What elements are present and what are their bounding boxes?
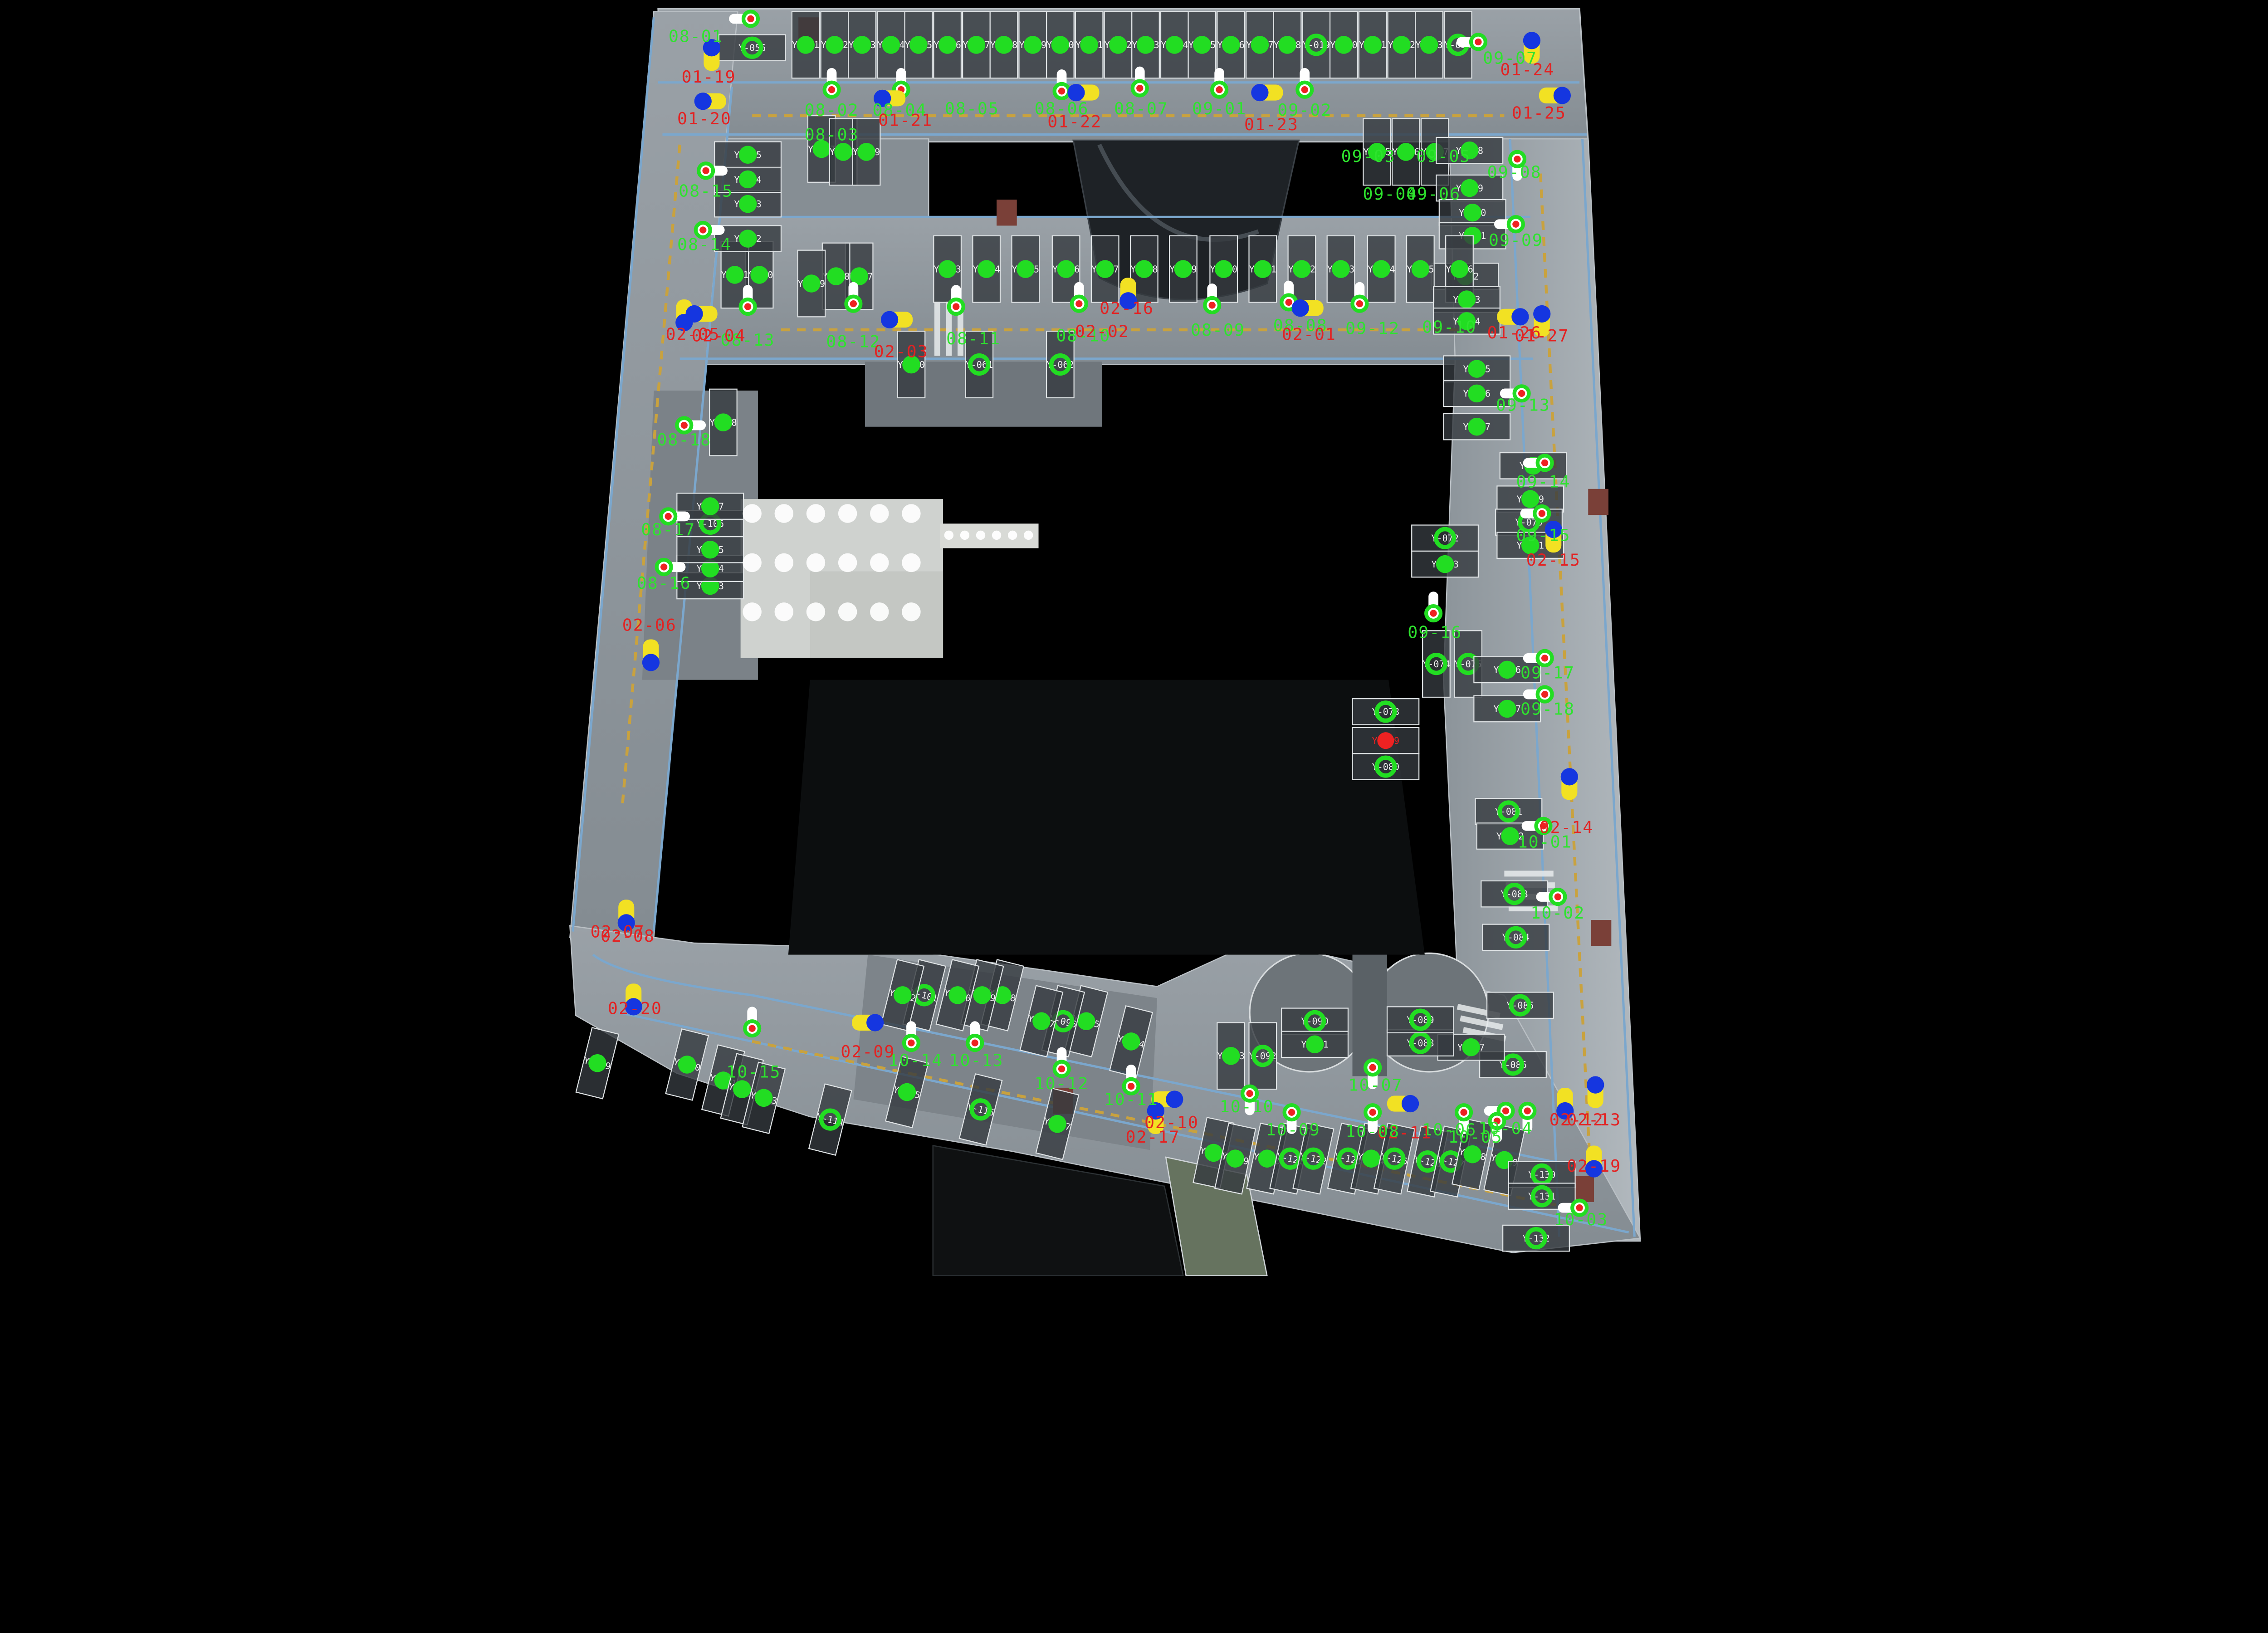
parking-stall[interactable]: Y-021	[1359, 12, 1387, 78]
stall-vacant-dot	[1051, 36, 1070, 54]
stall-vacant-dot	[1222, 36, 1240, 54]
camera-center-dot	[749, 1025, 756, 1032]
ceiling-light	[838, 602, 857, 621]
zone-label[interactable]: 09-15	[1516, 526, 1570, 545]
lit-lobby	[741, 499, 1039, 658]
zone-label[interactable]: 02-01	[1282, 324, 1336, 344]
ceiling-light	[807, 553, 825, 572]
parking-stall[interactable]: Y-105	[677, 537, 743, 562]
stall-vacant-dot	[1373, 260, 1391, 278]
parking-stall[interactable]: Y-091	[1281, 1032, 1348, 1057]
stall-vacant-dot	[1412, 260, 1430, 278]
vehicle-cap	[881, 311, 898, 328]
zone-label[interactable]: 08-07	[1114, 99, 1168, 118]
parking-stall[interactable]: Y-037	[1091, 236, 1119, 303]
vehicle-marker[interactable]	[1539, 87, 1571, 104]
maintenance-patch	[1588, 489, 1608, 515]
stall-vacant-dot	[1458, 290, 1476, 308]
parking-stall[interactable]: Y-044	[1368, 236, 1395, 303]
parking-stall[interactable]: Y-072	[1412, 525, 1478, 551]
parking-stall[interactable]: Y-080	[1353, 753, 1419, 779]
stall-vacant-dot	[726, 266, 744, 284]
garage-map-stage: Y-001Y-002Y-003Y-004Y-005Y-006Y-007Y-008…	[0, 0, 2268, 1276]
vehicle-cap	[1554, 87, 1571, 104]
camera-center-dot	[1512, 221, 1519, 228]
zone-label[interactable]: 02-06	[622, 615, 677, 635]
stall-vacant-dot	[1293, 260, 1311, 278]
camera-center-dot	[1541, 691, 1548, 698]
parking-stall[interactable]: Y-060	[898, 331, 925, 398]
maintenance-patch	[1574, 1176, 1594, 1202]
zone-label[interactable]: 01-20	[677, 109, 732, 128]
vehicle-cap	[1292, 299, 1309, 317]
zone-label[interactable]: 01-24	[1500, 60, 1554, 79]
camera-center-dot	[1369, 1064, 1376, 1071]
camera-marker[interactable]	[1426, 592, 1441, 621]
vehicle-marker[interactable]	[1587, 1076, 1604, 1108]
stall-occupied-dot	[1377, 732, 1394, 749]
parking-stall[interactable]: Y-008	[990, 12, 1018, 78]
camera-center-dot	[908, 1039, 914, 1046]
camera-center-dot	[850, 300, 857, 307]
vehicle-cap	[866, 1014, 884, 1031]
stall-vacant-dot	[1080, 36, 1098, 54]
stall-vacant-dot	[1462, 1038, 1480, 1056]
zone-label[interactable]: 08-17	[641, 520, 695, 539]
camera-center-dot	[1209, 302, 1216, 308]
parking-stall[interactable]: Y-019	[1302, 12, 1330, 78]
vehicle-marker[interactable]	[1292, 299, 1324, 317]
parking-stall[interactable]: Y-088	[1387, 1030, 1454, 1056]
zone-label[interactable]: 02-02	[1075, 322, 1129, 341]
stall-vacant-dot	[1468, 360, 1486, 378]
stall-vacant-dot	[1468, 385, 1486, 403]
parking-stall[interactable]: Y-041	[1249, 236, 1277, 303]
camera-center-dot	[1058, 1066, 1065, 1072]
vehicle-marker[interactable]	[1251, 84, 1283, 101]
stall-vacant-dot	[1420, 36, 1438, 54]
parking-stall[interactable]: Y-043	[1327, 236, 1355, 303]
stall-vacant-dot	[1451, 260, 1469, 278]
parking-stall[interactable]: Y-012	[1105, 12, 1132, 78]
zone-label[interactable]: 01-25	[1512, 103, 1566, 122]
zone-label[interactable]: 02-04	[692, 326, 746, 346]
parking-stall[interactable]: Y-015	[1188, 12, 1216, 78]
vehicle-marker[interactable]	[852, 1014, 884, 1031]
stall-vacant-dot	[1024, 36, 1042, 54]
camera-center-dot	[1246, 1090, 1253, 1097]
camera-center-dot	[665, 513, 672, 520]
vehicle-marker[interactable]	[694, 93, 726, 110]
parking-stall[interactable]: Y-045	[1407, 236, 1434, 303]
zone-label[interactable]: 02-19	[1567, 1156, 1621, 1176]
vehicle-marker[interactable]	[642, 639, 660, 671]
zone-label[interactable]: 08-09	[1191, 320, 1245, 340]
parking-stall[interactable]: Y-085	[1487, 993, 1554, 1018]
zone-label[interactable]: 10-01	[1518, 832, 1572, 852]
parking-stall[interactable]: Y-109	[576, 1027, 619, 1099]
zone-label[interactable]: 08-18	[657, 430, 711, 450]
stall-vacant-dot	[978, 260, 996, 278]
parking-stall[interactable]: Y-093	[1217, 1022, 1245, 1089]
stall-vacant-dot	[1463, 204, 1481, 222]
vehicle-cap	[1402, 1095, 1419, 1112]
parking-stall[interactable]: Y-056	[719, 35, 786, 61]
zone-label[interactable]: 09-13	[1496, 396, 1550, 415]
zone-label[interactable]: 08-05	[945, 99, 999, 118]
camera-center-dot	[1356, 300, 1363, 307]
zone-label[interactable]: 10-11	[1104, 1090, 1158, 1109]
parking-stall[interactable]: Y-035	[1012, 236, 1040, 303]
stall-vacant-dot	[1498, 700, 1516, 718]
ceiling-light	[743, 602, 761, 621]
parking-stall[interactable]: Y-003	[848, 12, 876, 78]
parking-stall[interactable]: Y-067	[1443, 414, 1510, 440]
stall-vacant-dot	[1521, 490, 1540, 508]
zone-label[interactable]: 01-27	[1515, 326, 1569, 346]
camera-center-dot	[1502, 1107, 1509, 1114]
zone-label[interactable]: 10-02	[1530, 903, 1585, 923]
stall-vacant-dot	[1137, 36, 1155, 54]
maintenance-patch	[1591, 920, 1612, 946]
parking-stall[interactable]: Y-108	[709, 389, 737, 456]
stall-vacant-dot	[1397, 143, 1415, 161]
stall-vacant-dot	[1096, 260, 1114, 278]
parking-stall[interactable]: Y-013	[1132, 12, 1159, 78]
ceiling-light	[976, 531, 985, 540]
stall-vacant-dot	[1306, 1036, 1324, 1054]
stall-vacant-dot	[1278, 36, 1296, 54]
camera-center-dot	[1541, 655, 1548, 661]
rotunda-passage	[1353, 952, 1388, 1076]
stall-vacant-dot	[739, 230, 757, 248]
zone-label[interactable]: 09-02	[1277, 100, 1332, 120]
vehicle-cap	[685, 305, 703, 323]
camera-center-dot	[744, 303, 751, 310]
ceiling-light	[743, 504, 761, 523]
zone-label[interactable]: 08-02	[805, 100, 859, 120]
stall-vacant-dot	[857, 143, 875, 161]
ceiling-light	[902, 553, 920, 572]
zone-label[interactable]: 02-09	[841, 1042, 895, 1061]
parking-stall[interactable]: Y-011	[1075, 12, 1103, 78]
zone-label[interactable]: 02-03	[874, 342, 929, 362]
stall-vacant-dot	[802, 274, 821, 293]
zone-label[interactable]: 10-07	[1349, 1075, 1403, 1095]
ceiling-light	[960, 531, 969, 540]
zone-label[interactable]: 08-11	[946, 329, 1001, 348]
vehicle-cap	[642, 654, 660, 671]
zone-label[interactable]: 02-08	[601, 926, 655, 946]
camera-center-dot	[747, 15, 754, 22]
ceiling-light	[992, 531, 1001, 540]
ceiling-light	[743, 553, 761, 572]
stall-vacant-dot	[1468, 418, 1486, 436]
parking-stall[interactable]: Y-016	[1217, 12, 1245, 78]
parking-stall[interactable]: Y-034	[973, 236, 1000, 303]
stall-vacant-dot	[938, 260, 957, 278]
zone-label[interactable]: 02-13	[1567, 1110, 1621, 1129]
zone-label[interactable]: 09-03	[1341, 147, 1396, 166]
parking-stall[interactable]: Y-014	[1161, 12, 1188, 78]
parking-stall[interactable]: Y-079	[1353, 728, 1419, 753]
camera-center-dot	[828, 86, 835, 93]
camera-center-dot	[702, 167, 709, 174]
stall-vacant-dot	[739, 146, 757, 164]
vehicle-marker[interactable]	[685, 305, 717, 323]
zone-label[interactable]: 09-14	[1516, 472, 1570, 492]
ceiling-light	[807, 504, 825, 523]
parking-stall[interactable]: Y-039	[1169, 236, 1197, 303]
parking-stall[interactable]: Y-018	[1274, 12, 1301, 78]
zone-label[interactable]: 01-19	[682, 67, 736, 87]
ceiling-light	[902, 504, 920, 523]
stall-vacant-dot	[1254, 260, 1272, 278]
stall-vacant-dot	[1057, 260, 1075, 278]
stall-vacant-dot	[1498, 661, 1516, 679]
zone-label[interactable]: 10-03	[1554, 1210, 1608, 1229]
zone-label[interactable]: 10-10	[1220, 1097, 1274, 1116]
vehicle-marker[interactable]	[881, 311, 913, 328]
stall-vacant-dot	[714, 413, 733, 431]
parking-stall[interactable]: Y-007	[963, 12, 990, 78]
stall-vacant-dot	[1335, 36, 1353, 54]
stall-vacant-dot	[1135, 260, 1154, 278]
stall-vacant-dot	[1193, 36, 1211, 54]
parking-stall[interactable]: Y-009	[1019, 12, 1046, 78]
camera-center-dot	[1541, 460, 1548, 466]
ceiling-light	[1024, 531, 1033, 540]
stall-vacant-dot	[750, 266, 768, 284]
stall-vacant-dot	[1017, 260, 1035, 278]
parking-stall[interactable]: Y-081	[1476, 798, 1542, 824]
camera-center-dot	[1288, 1109, 1295, 1116]
vehicle-marker[interactable]	[1387, 1095, 1419, 1112]
parking-stall[interactable]: Y-010	[1046, 12, 1074, 78]
vehicle-cap	[1251, 84, 1268, 101]
camera-center-dot	[1136, 85, 1143, 92]
parking-stall[interactable]: Y-023	[1415, 12, 1443, 78]
zone-label[interactable]: 09-10	[1422, 317, 1476, 337]
camera-center-dot	[1128, 1083, 1134, 1090]
camera-center-dot	[1430, 610, 1437, 616]
stall-vacant-dot	[1393, 36, 1411, 54]
parking-stall[interactable]: Y-078	[1353, 699, 1419, 724]
parking-stall[interactable]: Y-089	[1387, 1007, 1454, 1032]
vehicle-cap	[1166, 1090, 1183, 1108]
parking-stall[interactable]: Y-065	[1443, 356, 1510, 381]
parking-stall[interactable]: Y-049	[798, 250, 826, 317]
zone-label[interactable]: 09-01	[1192, 99, 1246, 118]
zone-label[interactable]: 01-21	[878, 110, 933, 130]
vehicle-cap	[1587, 1076, 1604, 1093]
vehicle-cap	[694, 93, 712, 110]
parking-stall[interactable]: Y-001	[792, 12, 820, 78]
stall-vacant-dot	[826, 36, 844, 54]
parking-stall[interactable]: Y-022	[1388, 12, 1416, 78]
camera-center-dot	[1286, 299, 1292, 306]
ceiling-light	[944, 531, 953, 540]
camera-center-dot	[1460, 1109, 1467, 1116]
ceiling-light	[1008, 531, 1017, 540]
stall-vacant-dot	[1222, 1047, 1240, 1065]
camera-center-dot	[1301, 86, 1308, 93]
stall-vacant-dot	[1461, 179, 1479, 197]
camera-center-dot	[660, 563, 667, 570]
zone-label[interactable]: 09-08	[1487, 162, 1542, 182]
zone-label[interactable]: 09-18	[1520, 699, 1575, 719]
parking-stall[interactable]: Y-020	[1330, 12, 1358, 78]
zone-label[interactable]: 09-12	[1345, 319, 1400, 338]
zone-label[interactable]: 08-12	[826, 332, 880, 351]
parking-stall[interactable]: Y-002	[821, 12, 849, 78]
camera-center-dot	[1514, 156, 1520, 162]
parking-stall[interactable]: Y-090	[1281, 1008, 1348, 1034]
stall-vacant-dot	[1251, 36, 1269, 54]
camera-center-dot	[1524, 1107, 1531, 1114]
parking-stall[interactable]: Y-006	[934, 12, 961, 78]
maintenance-patch	[997, 200, 1017, 225]
ceiling-light	[775, 504, 793, 523]
parking-stall[interactable]: Y-073	[1412, 551, 1478, 577]
zone-label[interactable]: 08-01	[669, 26, 723, 46]
zone-label[interactable]: 08-03	[805, 125, 859, 144]
ceiling-light	[807, 602, 825, 621]
camera-center-dot	[1554, 893, 1561, 900]
zone-label[interactable]: 02-17	[1125, 1127, 1180, 1147]
stall-vacant-dot	[1109, 36, 1127, 54]
stall-vacant-dot	[938, 36, 957, 54]
stall-vacant-dot	[701, 497, 719, 515]
garage-floorplan-svg: Y-001Y-002Y-003Y-004Y-005Y-006Y-007Y-008…	[0, 0, 2268, 1276]
zone-label[interactable]: 08-15	[679, 181, 733, 201]
parking-stall[interactable]: Y-092	[1249, 1022, 1277, 1089]
stall-vacant-dot	[968, 36, 986, 54]
camera-center-dot	[1475, 39, 1481, 45]
zone-label[interactable]: 02-16	[1100, 298, 1154, 318]
stall-vacant-dot	[739, 195, 757, 213]
stall-vacant-dot	[1332, 260, 1350, 278]
parking-stall[interactable]: Y-084	[1482, 924, 1549, 950]
ceiling-light	[870, 602, 889, 621]
zone-label[interactable]: 10-08	[1345, 1121, 1400, 1141]
vehicle-marker[interactable]	[1561, 768, 1578, 800]
zone-label[interactable]: 10-14	[889, 1051, 943, 1070]
stall-vacant-dot	[882, 36, 900, 54]
stall-vacant-dot	[1215, 260, 1233, 278]
camera-center-dot	[972, 1039, 978, 1046]
zone-label[interactable]: 01-22	[1047, 112, 1102, 132]
floor-unlit-center	[788, 680, 1425, 955]
stall-vacant-dot	[834, 143, 852, 161]
parking-stall[interactable]: Y-026	[1392, 118, 1420, 185]
ceiling-light	[838, 504, 857, 523]
stall-vacant-dot	[1436, 555, 1454, 573]
stall-vacant-dot	[1174, 260, 1193, 278]
ceiling-light	[870, 504, 889, 523]
stall-vacant-dot	[827, 267, 845, 285]
vehicle-cap	[1523, 32, 1540, 49]
stall-vacant-dot	[853, 36, 871, 54]
zone-label[interactable]: 09-16	[1408, 622, 1462, 642]
stall-vacant-dot	[1166, 36, 1184, 54]
stall-vacant-dot	[1501, 827, 1519, 845]
ceiling-light	[775, 553, 793, 572]
camera-center-dot	[681, 422, 688, 429]
zone-label[interactable]: 09-17	[1520, 663, 1575, 683]
zone-label[interactable]: 02-15	[1526, 550, 1581, 570]
stall-vacant-dot	[701, 541, 719, 559]
zone-label[interactable]: 10-13	[949, 1051, 1003, 1070]
parking-stall[interactable]: Y-005	[905, 12, 933, 78]
zone-label[interactable]: 09-06	[1406, 184, 1461, 204]
ceiling-light	[838, 553, 857, 572]
stall-vacant-dot	[797, 36, 815, 54]
zone-label[interactable]: 08-14	[677, 235, 732, 254]
parking-stall[interactable]: Y-017	[1246, 12, 1274, 78]
ceiling-light	[870, 553, 889, 572]
camera-center-dot	[1075, 300, 1082, 307]
camera-center-dot	[1539, 510, 1545, 517]
camera-center-dot	[1369, 1109, 1376, 1116]
stall-vacant-dot	[909, 36, 928, 54]
camera-center-dot	[1058, 88, 1065, 94]
ceiling-light	[775, 602, 793, 621]
zone-label[interactable]: 10-09	[1266, 1120, 1320, 1139]
camera-center-dot	[699, 226, 706, 233]
stall-vacant-dot	[995, 36, 1013, 54]
stall-vacant-dot	[739, 171, 757, 189]
zone-label[interactable]: 10-15	[726, 1062, 781, 1082]
zone-label[interactable]: 10-12	[1035, 1074, 1089, 1093]
parking-stall[interactable]: Y-055	[714, 142, 781, 168]
camera-center-dot	[1216, 86, 1222, 93]
zone-label[interactable]: 09-05	[1416, 147, 1471, 166]
zone-label[interactable]: 08-16	[637, 573, 691, 593]
camera-center-dot	[953, 303, 959, 310]
zone-label[interactable]: 09-09	[1489, 230, 1543, 250]
zone-label[interactable]: 02-20	[608, 998, 662, 1018]
vehicle-cap	[1561, 768, 1578, 785]
vehicle-cap	[1533, 305, 1550, 323]
stall-vacant-dot	[1364, 36, 1382, 54]
ceiling-light	[902, 602, 920, 621]
